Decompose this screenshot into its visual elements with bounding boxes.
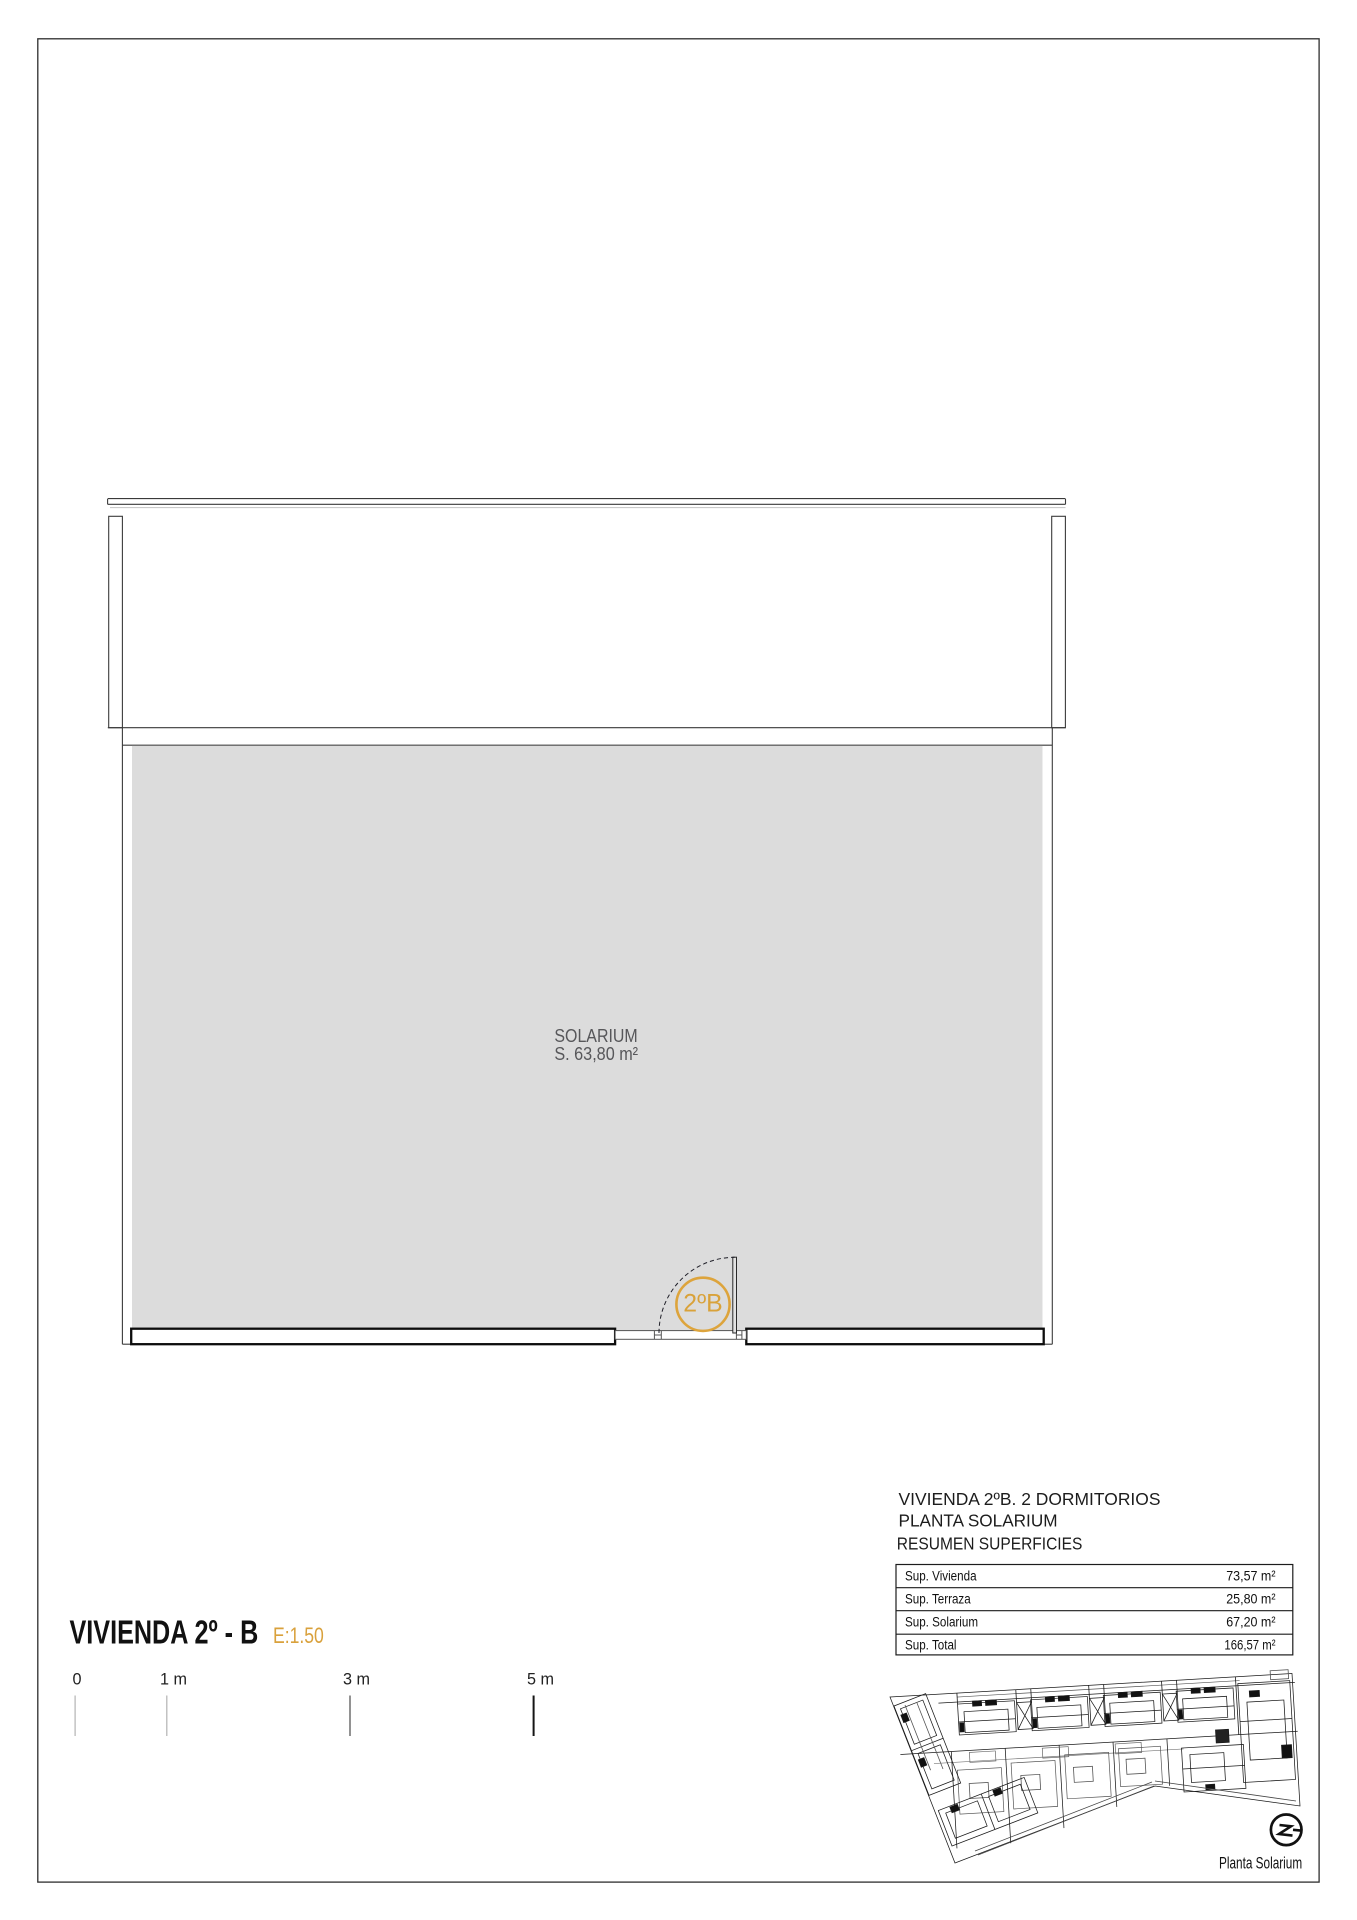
- svg-text:0: 0: [73, 1671, 82, 1689]
- svg-text:73,57 m²: 73,57 m²: [1226, 1568, 1276, 1584]
- svg-text:Sup. Solarium: Sup. Solarium: [905, 1614, 978, 1630]
- svg-text:25,80 m²: 25,80 m²: [1226, 1591, 1276, 1607]
- svg-text:VIVIENDA 2º - B: VIVIENDA 2º - B: [70, 1614, 259, 1651]
- svg-text:PLANTA SOLARIUM: PLANTA SOLARIUM: [899, 1510, 1058, 1530]
- svg-text:E:1.50: E:1.50: [273, 1624, 324, 1648]
- svg-text:Sup. Vivienda: Sup. Vivienda: [905, 1567, 977, 1583]
- svg-text:S. 63,80 m²: S. 63,80 m²: [554, 1043, 638, 1064]
- svg-text:3 m: 3 m: [343, 1671, 370, 1689]
- svg-text:VIVIENDA 2ºB. 2 DORMITORIOS: VIVIENDA 2ºB. 2 DORMITORIOS: [898, 1489, 1160, 1509]
- svg-text:Planta Solarium: Planta Solarium: [1219, 1855, 1302, 1873]
- svg-text:RESUMEN SUPERFICIES: RESUMEN SUPERFICIES: [897, 1534, 1083, 1554]
- svg-text:Sup. Total: Sup. Total: [905, 1636, 957, 1652]
- svg-text:5 m: 5 m: [527, 1671, 554, 1689]
- svg-text:2ºB: 2ºB: [683, 1291, 722, 1318]
- svg-text:67,20 m²: 67,20 m²: [1226, 1614, 1276, 1630]
- svg-text:166,57 m²: 166,57 m²: [1224, 1636, 1276, 1653]
- svg-text:Sup. Terraza: Sup. Terraza: [905, 1590, 971, 1606]
- svg-text:1 m: 1 m: [160, 1671, 187, 1689]
